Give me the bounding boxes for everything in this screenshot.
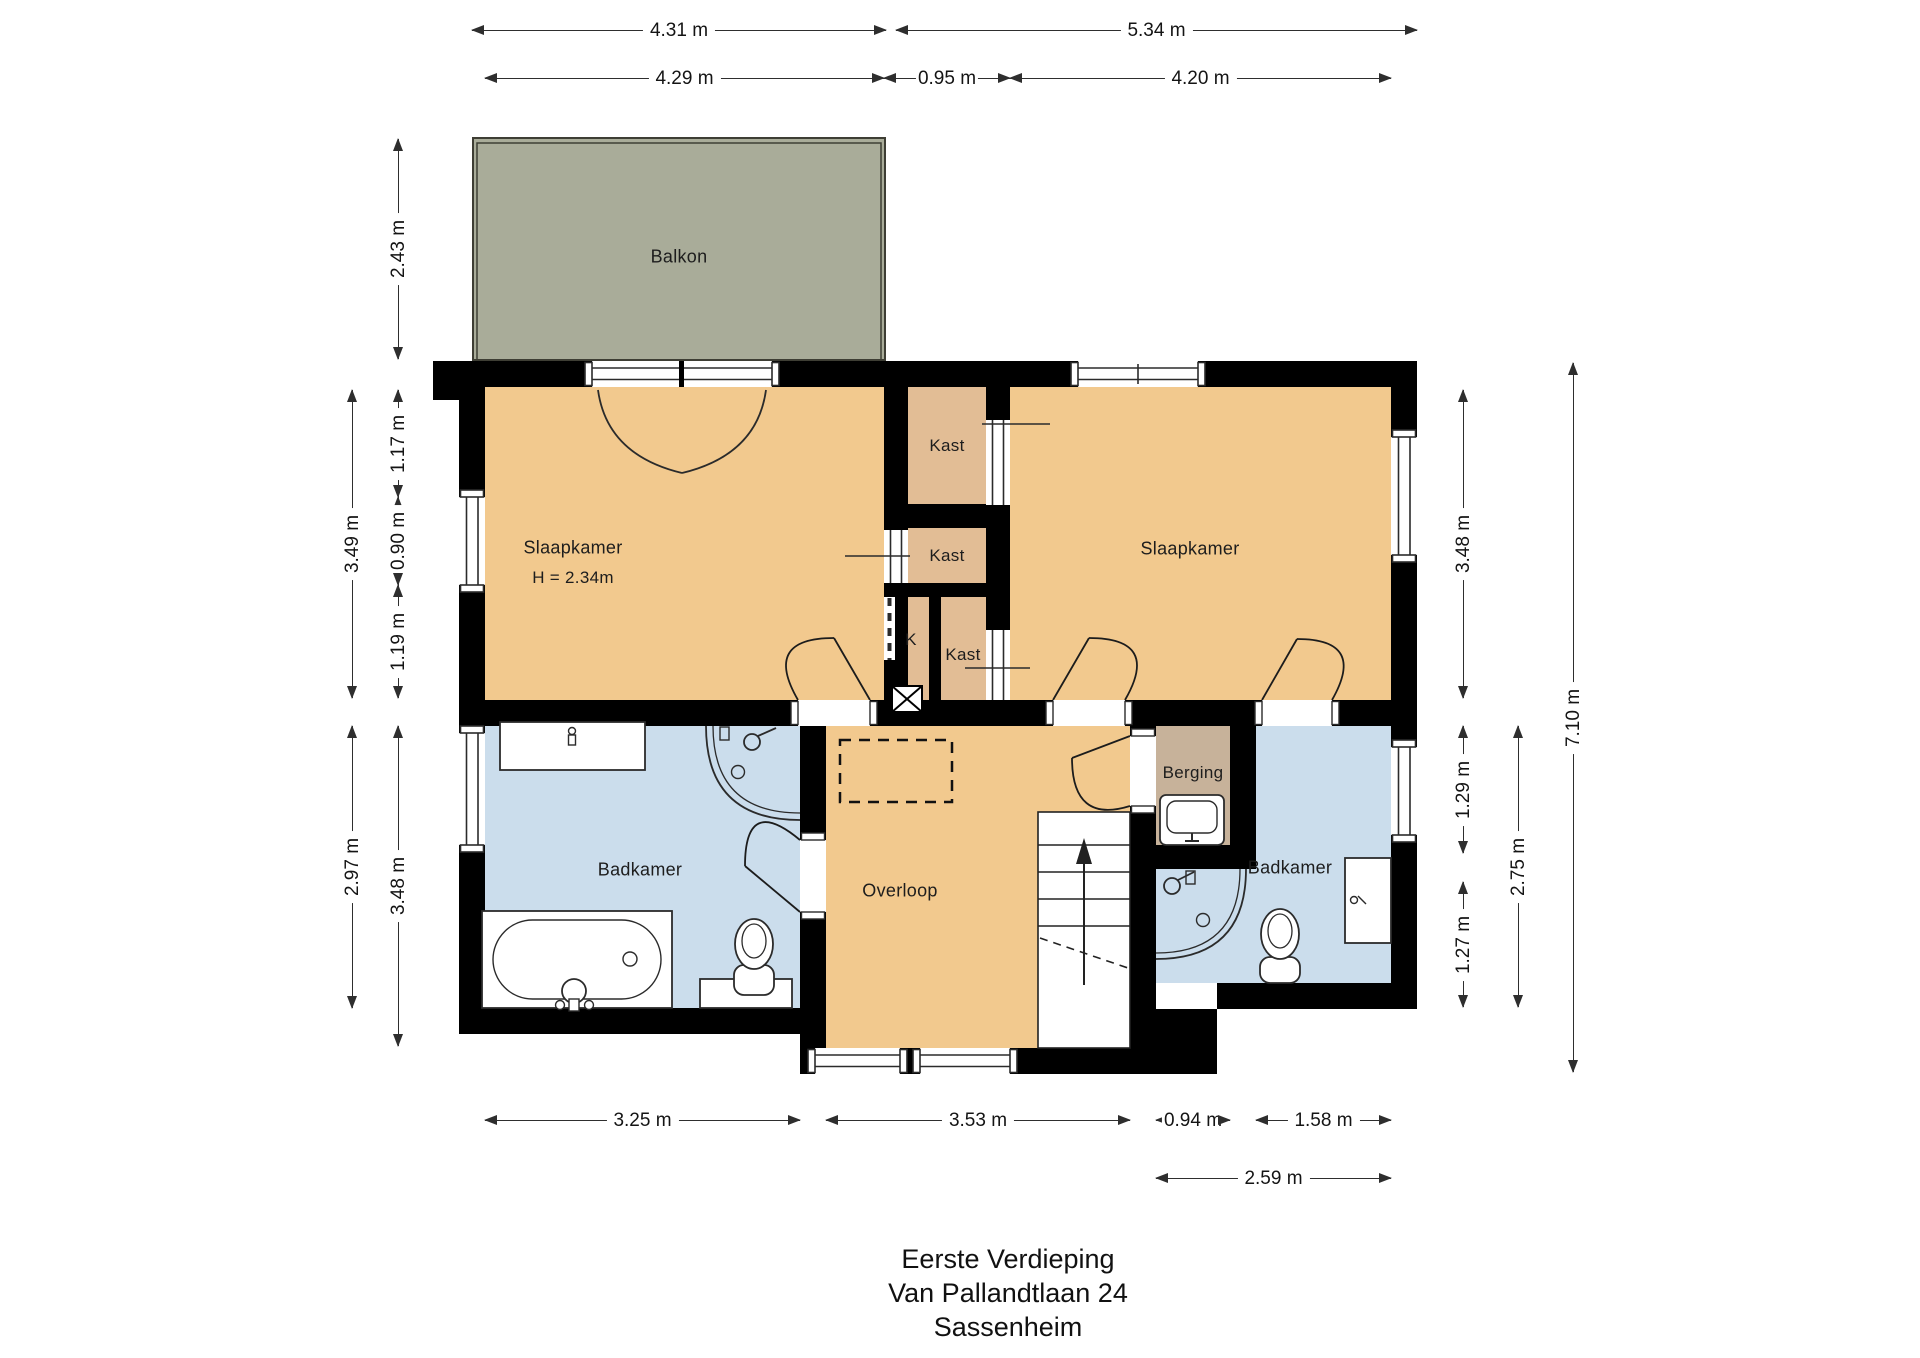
- dim-height-badkamer-right: 1.27 m: [1463, 882, 1464, 1007]
- dim-height-slaapkamer-right: 3.48 m: [1463, 390, 1464, 698]
- room-badkamer-right-lower: [1156, 869, 1391, 983]
- wall: [929, 597, 941, 700]
- wall: [800, 1048, 1217, 1074]
- label-k: K: [905, 630, 917, 650]
- dim-height-badkamer-left: 2.97 m: [352, 726, 353, 1008]
- wall: [1156, 1009, 1217, 1074]
- wall: [459, 1008, 826, 1034]
- wall: [1130, 726, 1156, 1048]
- label-berging: Berging: [1163, 763, 1224, 783]
- dim-width-right-section: 5.34 m: [896, 30, 1417, 31]
- dim-height-lower-right: 2.75 m: [1518, 726, 1519, 1007]
- wall: [433, 361, 459, 400]
- wall: [884, 504, 1010, 528]
- wall: [1230, 726, 1256, 869]
- wall: [884, 583, 1010, 597]
- dim-height-total-right: 7.10 m: [1573, 363, 1574, 1072]
- dim-height-berging: 1.29 m: [1463, 726, 1464, 853]
- room-berging: [1156, 726, 1230, 845]
- dim-width-badkamer-left: 3.25 m: [485, 1120, 800, 1121]
- label-kast-3: Kast: [945, 645, 980, 665]
- dim-width-badkamer-right: 1.58 m: [1256, 1120, 1391, 1121]
- label-balkon: Balkon: [651, 247, 708, 268]
- wall: [459, 361, 485, 1034]
- dim-width-slaapkamer-left: 4.29 m: [485, 78, 884, 79]
- label-badkamer-right: Badkamer: [1248, 858, 1332, 879]
- label-kast-1: Kast: [929, 436, 964, 456]
- label-ceiling-height: H = 2.34m: [532, 568, 614, 588]
- floor-plan: Balkon Slaapkamer H = 2.34m Slaapkamer K…: [0, 0, 1920, 1358]
- dim-width-berging-badkamer: 2.59 m: [1156, 1178, 1391, 1179]
- label-overloop: Overloop: [862, 881, 937, 902]
- plan-title: Eerste Verdieping Van Pallandtlaan 24 Sa…: [708, 1242, 1308, 1344]
- dim-width-berging: 0.94 m: [1156, 1120, 1230, 1121]
- wall: [459, 700, 1417, 726]
- wall: [1391, 361, 1417, 1009]
- dim-width-balkon: 4.31 m: [472, 30, 886, 31]
- wall: [1217, 983, 1417, 1009]
- dim-width-slaapkamer-right: 4.20 m: [1010, 78, 1391, 79]
- label-slaapkamer-left: Slaapkamer: [523, 538, 622, 559]
- title-address: Van Pallandtlaan 24: [708, 1276, 1308, 1310]
- dim-width-kast-zone: 0.95 m: [884, 78, 1010, 79]
- dim-window-to-wall: 1.19 m: [398, 585, 399, 698]
- wall: [986, 387, 1010, 700]
- wall: [884, 387, 908, 700]
- wall: [459, 361, 1417, 387]
- label-kast-2: Kast: [929, 546, 964, 566]
- dim-width-overloop: 3.53 m: [826, 1120, 1130, 1121]
- label-badkamer-left: Badkamer: [598, 860, 682, 881]
- title-city: Sassenheim: [708, 1310, 1308, 1344]
- dim-height-slaapkamer-upper: 3.49 m: [352, 390, 353, 698]
- title-floor: Eerste Verdieping: [708, 1242, 1308, 1276]
- room-badkamer-right-upper: [1256, 726, 1391, 869]
- dim-height-lower-left: 3.48 m: [398, 726, 399, 1046]
- dim-wall-to-window: 1.17 m: [398, 390, 399, 497]
- label-slaapkamer-right: Slaapkamer: [1140, 539, 1239, 560]
- dim-height-balkon: 2.43 m: [398, 139, 399, 359]
- dim-window: 0.90 m: [398, 497, 399, 585]
